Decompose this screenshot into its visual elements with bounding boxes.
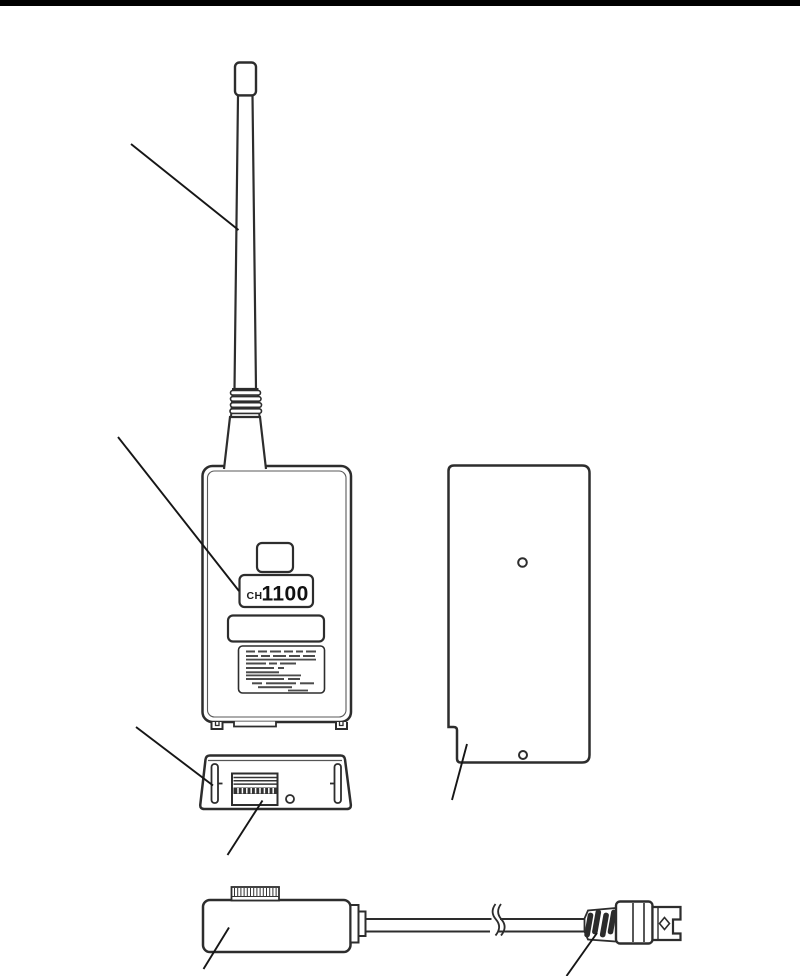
plug-barrel: [616, 902, 653, 944]
antenna-shaft: [235, 96, 257, 390]
module-top-connector: [232, 887, 280, 901]
cable: [366, 919, 587, 932]
antenna: [230, 63, 262, 418]
left-foot-notch: [216, 722, 220, 726]
center-tab: [234, 722, 276, 727]
module-outlet-step-1: [351, 905, 359, 943]
antenna-tip-cap: [235, 63, 256, 96]
battery-contact-connector: [232, 774, 278, 806]
right-latch-slot: [335, 764, 342, 803]
left-latch-slot: [212, 764, 219, 803]
compartment-screw-hole: [286, 795, 294, 803]
manual-page: CH 1100: [0, 0, 800, 976]
channel-label-prefix: CH: [247, 590, 263, 602]
battery-compartment: [200, 756, 351, 810]
top-rule-bar: [0, 0, 800, 6]
power-module-body: [203, 900, 351, 952]
display-window: [257, 543, 293, 572]
lower-plate: [228, 616, 324, 642]
battery-cover-panel: [449, 466, 590, 763]
module-top-connector-outline: [232, 887, 280, 901]
plug-callout-line: [567, 933, 598, 976]
spec-label: [239, 646, 325, 693]
battery-cover-outline: [449, 466, 590, 763]
spec-label-plate: [239, 646, 325, 693]
figure-canvas: CH 1100: [0, 0, 800, 976]
plug-connector: [584, 902, 681, 944]
antenna-callout-line: [131, 144, 239, 230]
screw-hole-top: [518, 558, 527, 567]
right-foot-notch: [340, 722, 344, 726]
channel-label-number: 1100: [262, 583, 309, 606]
latch-slot-callout-line: [136, 727, 213, 786]
power-module-assembly: [203, 887, 586, 952]
channel-label: CH 1100: [240, 575, 314, 607]
screw-hole-bottom: [519, 751, 527, 759]
antenna-ribs: [230, 391, 262, 414]
antenna-base: [224, 417, 266, 469]
module-outlet-step-2: [359, 912, 366, 937]
